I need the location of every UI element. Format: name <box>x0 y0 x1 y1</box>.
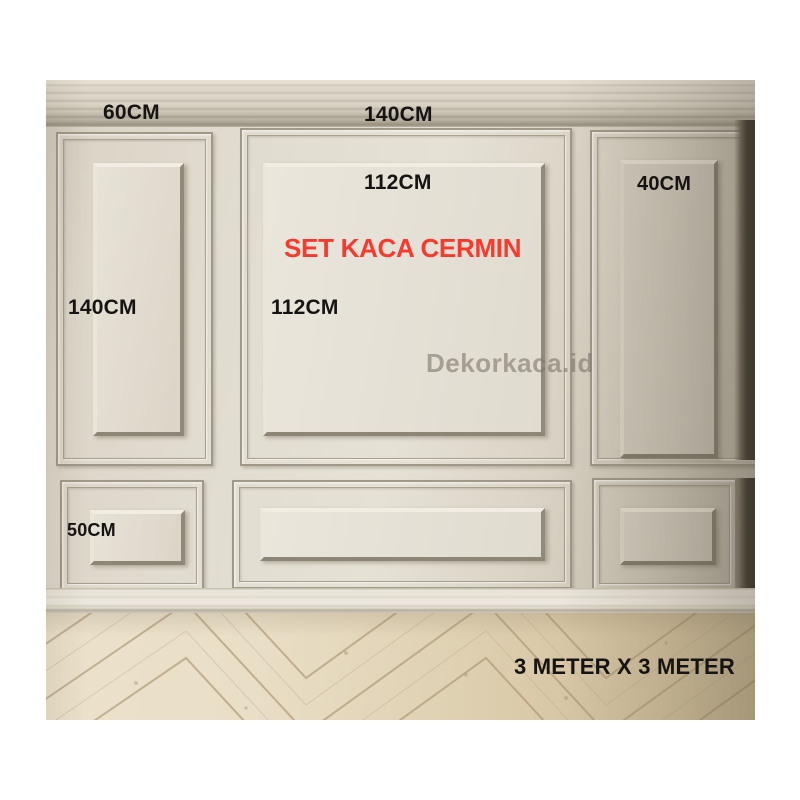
dimension-label-right-panel-width: 40CM <box>637 174 691 194</box>
dimension-label-bottom-panel-height: 50CM <box>67 521 116 539</box>
wainscoting-wall-photo: 60CM 140CM 112CM 112CM 140CM 40CM 50CM S… <box>46 80 755 720</box>
cropped-right-molding-lower <box>734 478 755 588</box>
dimension-label-top-center-width: 140CM <box>364 104 433 125</box>
room-size-label: 3 METER X 3 METER <box>514 656 735 678</box>
brand-watermark: Dekorkaca.id <box>426 350 594 376</box>
baseboard <box>46 588 755 613</box>
product-title: SET KACA CERMIN <box>284 235 521 261</box>
dimension-label-top-left-width: 60CM <box>103 102 160 123</box>
lower-right-raised-panel <box>620 508 716 565</box>
dimension-label-mirror-width: 112CM <box>364 172 432 193</box>
cropped-right-molding-upper <box>734 120 755 460</box>
dimension-label-left-panel-height: 140CM <box>68 297 137 318</box>
upper-right-raised-panel <box>620 160 718 458</box>
product-image: 60CM 140CM 112CM 112CM 140CM 40CM 50CM S… <box>0 0 800 800</box>
lower-center-raised-panel <box>260 508 545 561</box>
dimension-label-mirror-height: 112CM <box>271 297 339 318</box>
